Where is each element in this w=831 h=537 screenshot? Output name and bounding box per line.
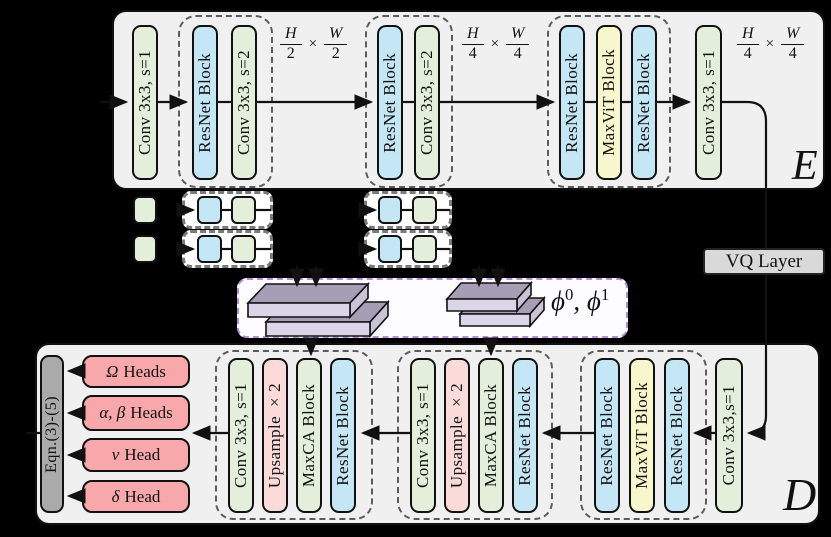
decoder-group1-conv-block: Conv 3x3, s=1 — [228, 358, 254, 513]
mini-conv-block — [412, 235, 437, 263]
dim-label-h4w4-b: H4 × W4 — [737, 26, 804, 63]
encoder-conv-out-block: Conv 3x3, s=1 — [695, 25, 722, 180]
encoder-group3-maxvit-block: MaxViT Block — [596, 25, 622, 180]
mini-conv-block — [133, 235, 157, 263]
decoder-conv-in-block: Conv 3x3,s=1 — [715, 358, 743, 513]
encoder-conv-in-block: Conv 3x3, s=1 — [132, 25, 158, 180]
encoder-group1-conv-block: Conv 3x3, s=2 — [231, 25, 257, 180]
mini-resnet-block — [197, 235, 222, 263]
decoder-group3-resnet-block-1: ResNet Block — [594, 358, 620, 513]
encoder-group2-conv-block: Conv 3x3, s=2 — [414, 25, 440, 180]
decoder-group2-upsample-block: Upsample ×2 — [444, 358, 470, 513]
eqn-output-block: Eqn.(3)-(5) — [40, 355, 64, 513]
decoder-group1-maxca-block: MaxCA Block — [296, 358, 322, 513]
decoder-group1-upsample-block: Upsample ×2 — [262, 358, 288, 513]
phi-label: ϕ0, ϕ1 — [551, 287, 609, 315]
delta-head-box: δHead — [82, 480, 190, 513]
encoder-group1-resnet-block: ResNet Block — [192, 25, 218, 180]
decoder-group2-conv-block: Conv 3x3, s=1 — [410, 358, 436, 513]
mini-group — [182, 230, 273, 268]
alpha-beta-heads-box: α, βHeads — [82, 395, 190, 431]
dim-label-h2w2: H2 × W2 — [280, 26, 347, 63]
nu-head-box: νHead — [82, 438, 190, 472]
decoder-group2-resnet-block: ResNet Block — [512, 358, 538, 513]
mini-resnet-block — [378, 235, 402, 263]
vq-layer-label: VQ Layer — [726, 251, 803, 273]
decoder-group3-resnet-block-2: ResNet Block — [664, 358, 690, 513]
decoder-group3-maxvit-block: MaxViT Block — [629, 358, 655, 513]
encoder-group3-resnet-block-1: ResNet Block — [559, 25, 585, 180]
encoder-group3-resnet-block-2: ResNet Block — [631, 25, 657, 180]
mini-resnet-block — [197, 196, 222, 224]
mini-resnet-block — [378, 196, 402, 224]
vq-layer-box: VQ Layer — [703, 248, 825, 275]
mini-conv-block — [231, 235, 256, 263]
architecture-diagram: E Conv 3x3, s=1 ResNet Block Conv 3x3, s… — [0, 0, 831, 537]
mini-conv-block — [412, 196, 437, 224]
encoder-group2-resnet-block: ResNet Block — [377, 25, 403, 180]
mini-conv-block — [231, 196, 256, 224]
mini-conv-block — [133, 196, 157, 224]
dim-label-h4w4-a: H4 × W4 — [462, 26, 529, 63]
decoder-group2-maxca-block: MaxCA Block — [478, 358, 504, 513]
decoder-panel-label: D — [783, 472, 816, 518]
mini-group — [182, 191, 273, 229]
decoder-group1-resnet-block: ResNet Block — [330, 358, 356, 513]
encoder-conv-in-label: Conv 3x3, s=1 — [135, 50, 155, 155]
encoder-panel-label: E — [792, 145, 818, 187]
omega-heads-box: ΩHeads — [82, 355, 190, 388]
